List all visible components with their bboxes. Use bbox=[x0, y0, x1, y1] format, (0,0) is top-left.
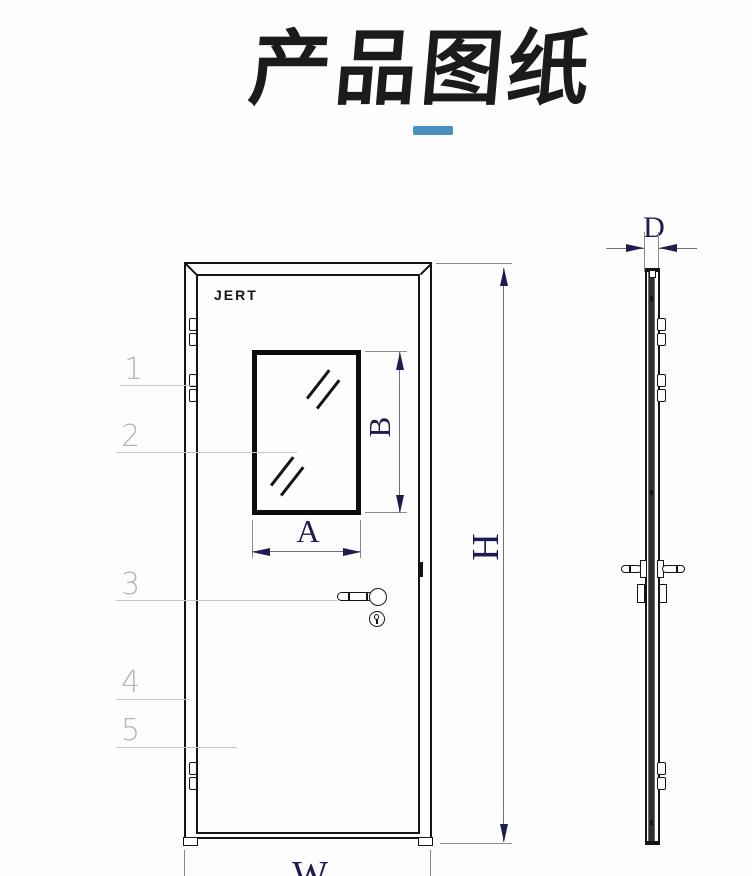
door-edge-top-notch bbox=[649, 270, 656, 278]
side-handle-plate-left bbox=[640, 560, 647, 578]
dim-H-arrow-down bbox=[500, 824, 508, 842]
title-underline-accent bbox=[413, 126, 453, 135]
frame-foot-right bbox=[418, 837, 433, 846]
hinge-bottom-knuckle bbox=[189, 762, 197, 775]
dim-W-extension-left bbox=[184, 850, 185, 876]
side-handle-lever-right bbox=[662, 565, 685, 573]
side-handle-tick bbox=[629, 565, 631, 573]
hinge-top-knuckle bbox=[189, 333, 197, 346]
callout-leader-line bbox=[116, 452, 297, 453]
callout-number: 2 bbox=[121, 422, 140, 452]
hinge-upper-knuckle bbox=[189, 389, 197, 402]
side-hinge-knuckle bbox=[657, 374, 666, 387]
dim-label-door-height: H bbox=[467, 525, 505, 569]
door-edge-bottom-cap bbox=[645, 841, 660, 845]
dim-label-thickness: D bbox=[637, 211, 671, 245]
edge-fastener-dot bbox=[650, 296, 653, 301]
handle-lever-tick bbox=[348, 592, 350, 601]
side-handle-lever-left bbox=[621, 565, 642, 573]
side-lock-plate-left bbox=[637, 584, 645, 603]
dim-D-extension-right bbox=[658, 232, 659, 272]
vision-window bbox=[252, 350, 361, 515]
hinge-top-knuckle bbox=[189, 318, 197, 331]
callout-number: 3 bbox=[121, 570, 140, 600]
dim-B-arrow-up bbox=[396, 352, 404, 370]
handle-lever-tick bbox=[366, 592, 368, 601]
callout-number: 1 bbox=[124, 355, 143, 385]
dim-B-line bbox=[399, 352, 400, 513]
dim-W-extension-right bbox=[430, 850, 431, 876]
dim-D-arrow-left bbox=[659, 244, 677, 252]
door-leaf-bottom-line bbox=[198, 837, 418, 839]
dim-B-arrow-down bbox=[396, 495, 404, 513]
edge-fastener-dot bbox=[650, 820, 653, 825]
side-hinge-knuckle bbox=[657, 389, 666, 402]
dim-D-arrow-right bbox=[626, 244, 644, 252]
dim-label-window-width: A bbox=[290, 513, 326, 550]
page-title: 产品图纸 bbox=[245, 2, 599, 121]
hinge-bottom-knuckle bbox=[189, 777, 197, 790]
callout-leader-line bbox=[116, 747, 237, 748]
callout-leader-line bbox=[116, 600, 338, 601]
callout-number: 4 bbox=[121, 668, 140, 698]
dim-label-door-width: W bbox=[290, 853, 330, 876]
callout-leader-line bbox=[120, 385, 196, 386]
dim-H-extension-top bbox=[436, 263, 512, 264]
door-handle-lever bbox=[337, 592, 373, 601]
edge-fastener-dot bbox=[650, 490, 653, 495]
dim-H-arrow-up bbox=[500, 268, 508, 286]
product-drawing-page: 产品图纸 JERT bbox=[0, 0, 752, 876]
side-lock-plate-right bbox=[659, 584, 667, 603]
brand-label: JERT bbox=[214, 287, 258, 303]
side-hinge-knuckle bbox=[657, 333, 666, 346]
side-handle-tick bbox=[676, 565, 678, 573]
dim-H-extension-bottom bbox=[440, 843, 512, 844]
dim-label-window-height: B bbox=[363, 409, 397, 445]
callout-number: 5 bbox=[121, 716, 140, 746]
keyhole-stem bbox=[376, 619, 378, 624]
lock-strike-mark bbox=[419, 562, 423, 577]
dim-A-arrow-right bbox=[343, 548, 361, 556]
callout-leader-line bbox=[116, 699, 189, 700]
frame-foot-left bbox=[183, 837, 198, 846]
dim-A-arrow-left bbox=[252, 548, 270, 556]
handle-rosette bbox=[369, 588, 387, 606]
side-hinge-knuckle bbox=[657, 762, 666, 775]
door-edge-profile bbox=[645, 268, 660, 845]
side-hinge-knuckle bbox=[657, 318, 666, 331]
dim-D-extension-left bbox=[644, 232, 645, 272]
side-hinge-knuckle bbox=[657, 777, 666, 790]
